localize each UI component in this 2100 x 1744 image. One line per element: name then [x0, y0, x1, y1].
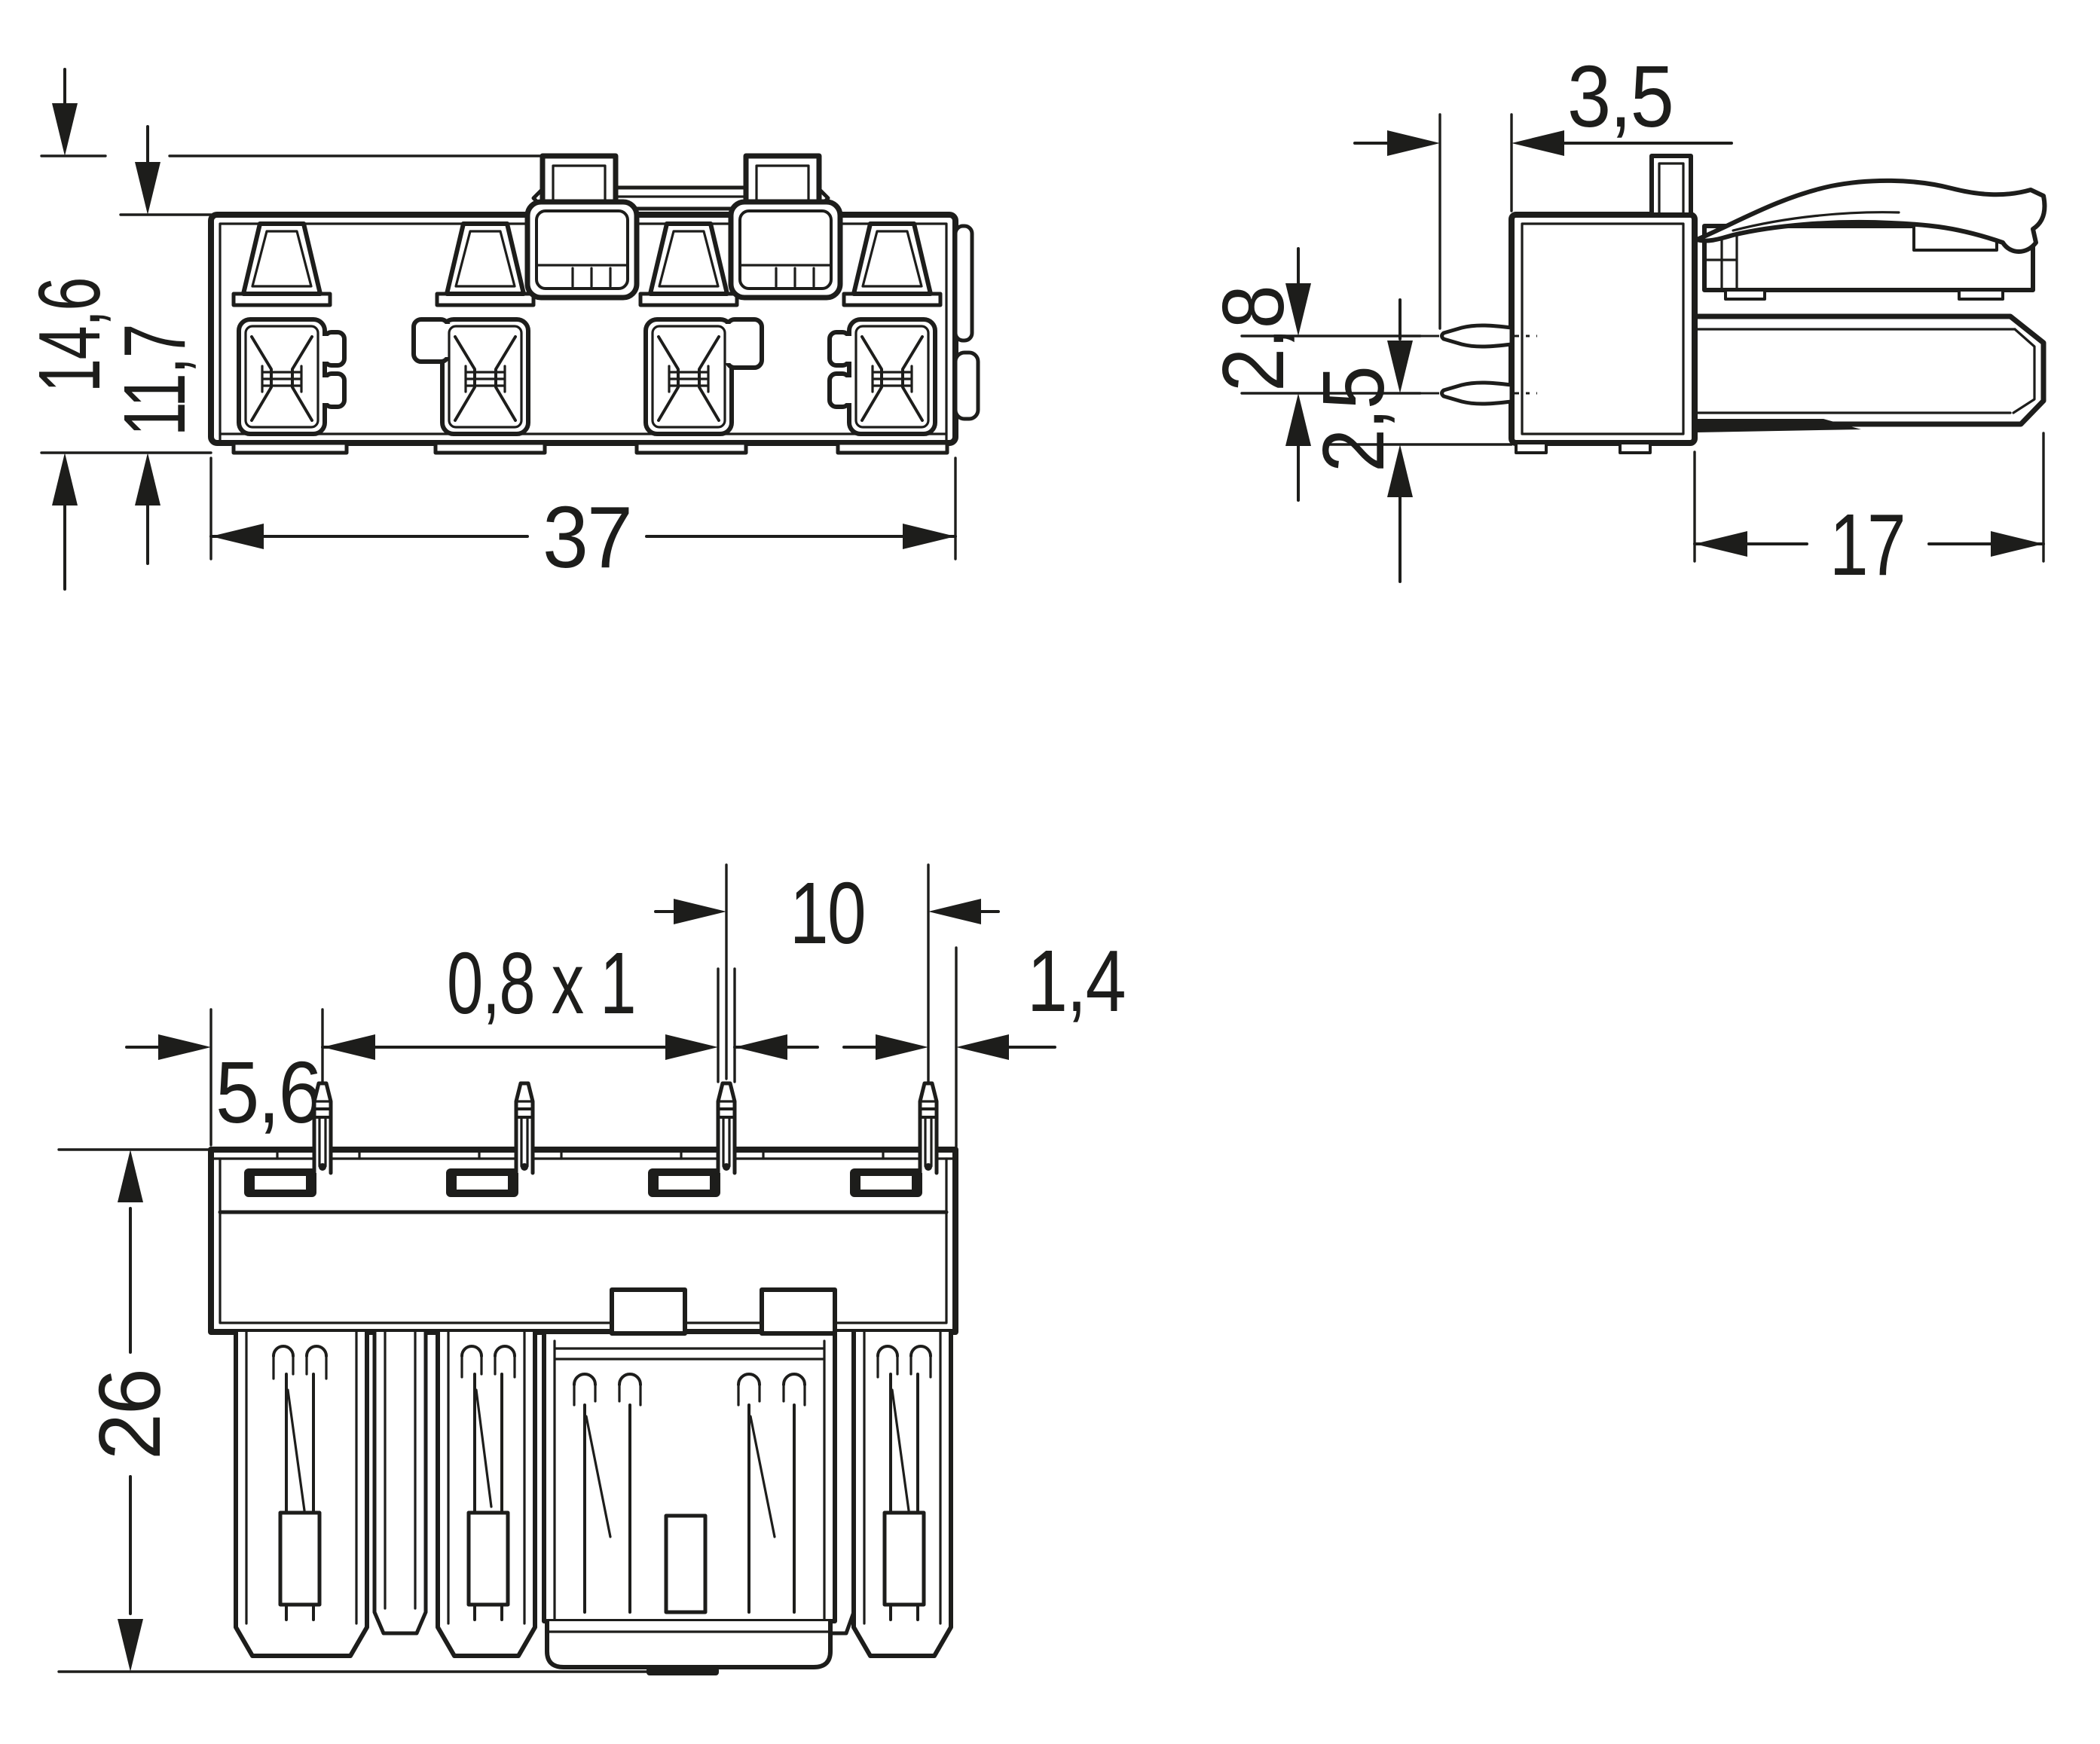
dim-label-2-8: 2,8	[1204, 286, 1302, 392]
dim-label-17: 17	[1829, 496, 1905, 594]
leg-tower-1	[236, 1332, 426, 1656]
bottom-dim-edge-to-pin: 5,6	[127, 1009, 375, 1145]
bottom-body	[211, 1150, 955, 1332]
front-dim-body-height: 11,7	[105, 127, 203, 564]
drawing-page: 14,6 11,7 37	[0, 0, 2100, 1744]
block-ear-left	[612, 1290, 685, 1333]
dim-label-1-4: 1,4	[1027, 932, 1125, 1030]
block-ear-right	[762, 1290, 835, 1333]
side-cable-housing	[1695, 316, 2043, 432]
side-clip-lower	[955, 353, 978, 419]
dim-label-11-7: 11,7	[105, 325, 203, 436]
bottom-dim-pin-cross-section: 0,8 x 1	[322, 934, 818, 1082]
front-view: 14,6 11,7 37	[20, 69, 978, 589]
pin-4	[920, 1083, 937, 1173]
bottom-view: 10 0,8 x 1 1,4 5,6	[59, 864, 1125, 1675]
dim-label-26: 26	[81, 1370, 179, 1460]
dim-label-5-6: 5,6	[216, 1043, 321, 1141]
dim-label-3-5: 3,5	[1567, 47, 1673, 145]
dim-label-37: 37	[543, 488, 631, 586]
side-body	[1512, 156, 1695, 453]
front-dim-width: 37	[211, 488, 955, 586]
pin-3	[718, 1083, 735, 1173]
side-latch-assembly	[1697, 181, 2044, 299]
dim-label-14-6: 14,6	[20, 278, 118, 392]
bottom-central-block	[544, 1290, 835, 1675]
leg-tower-4	[821, 1332, 951, 1656]
pin-2	[516, 1083, 533, 1173]
pin-1	[314, 1083, 331, 1173]
front-dim-total-height: 14,6	[20, 69, 118, 589]
dim-label-0-8x1: 0,8 x 1	[447, 934, 635, 1032]
side-dim-depth: 17	[1695, 433, 2043, 594]
bottom-dim-pin-to-edge: 1,4	[844, 932, 1125, 1147]
bottom-dim-pitch: 10	[656, 864, 998, 1096]
dim-label-10: 10	[790, 864, 865, 962]
side-clip-upper	[955, 226, 972, 341]
side-latch-tab	[1652, 156, 1691, 215]
technical-drawing-canvas: 14,6 11,7 37	[0, 0, 2100, 1744]
side-view: 3,5 2,8 2,5	[1204, 47, 2044, 594]
dim-label-2-5: 2,5	[1304, 367, 1402, 472]
leg-tower-2	[438, 1332, 535, 1656]
